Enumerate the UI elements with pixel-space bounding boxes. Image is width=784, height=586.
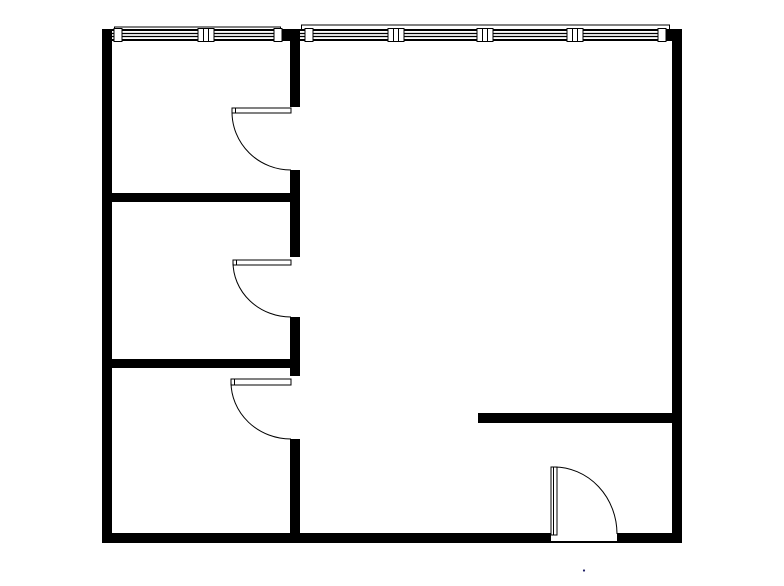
door-room-upper-left-leaf [232, 108, 291, 113]
wall-interior-horizontal-2 [102, 359, 300, 368]
window-north-east-post-2 [658, 29, 666, 42]
wall-interior-stub-east [478, 413, 682, 423]
wall-interior-vertical-b [290, 170, 300, 257]
door-room-middle-left-leaf [233, 260, 291, 265]
wall-exterior-bottom-east [617, 533, 682, 543]
wall-interior-vertical-a [290, 41, 300, 107]
window-north-west-band-top [112, 29, 282, 31]
window-north-east-mullion-3 [567, 29, 583, 42]
wall-exterior-right [672, 29, 682, 543]
window-north-west-post-2 [274, 29, 282, 42]
wall-exterior-left [102, 29, 112, 543]
window-north-east-mullion-2 [477, 29, 493, 42]
wall-interior-horizontal-1 [102, 193, 300, 202]
entrance-threshold [551, 541, 617, 543]
floor-plan-svg [0, 0, 784, 586]
window-north-west-mullion-1 [198, 29, 214, 42]
window-north-west-post-1 [114, 29, 122, 42]
floor-plan-canvas [0, 0, 784, 586]
background [0, 0, 784, 586]
window-north-east-mullion-1 [388, 29, 404, 42]
wall-interior-vertical-d [290, 439, 300, 533]
wall-exterior-bottom-west [102, 533, 551, 543]
window-north-east-post-1 [305, 29, 313, 42]
door-room-lower-left-leaf [231, 379, 291, 385]
wall-top-pier-center [281, 29, 300, 41]
wall-top-corner-east [665, 29, 682, 41]
stray-dot [583, 569, 585, 571]
window-north-west-band-bottom [112, 39, 282, 41]
